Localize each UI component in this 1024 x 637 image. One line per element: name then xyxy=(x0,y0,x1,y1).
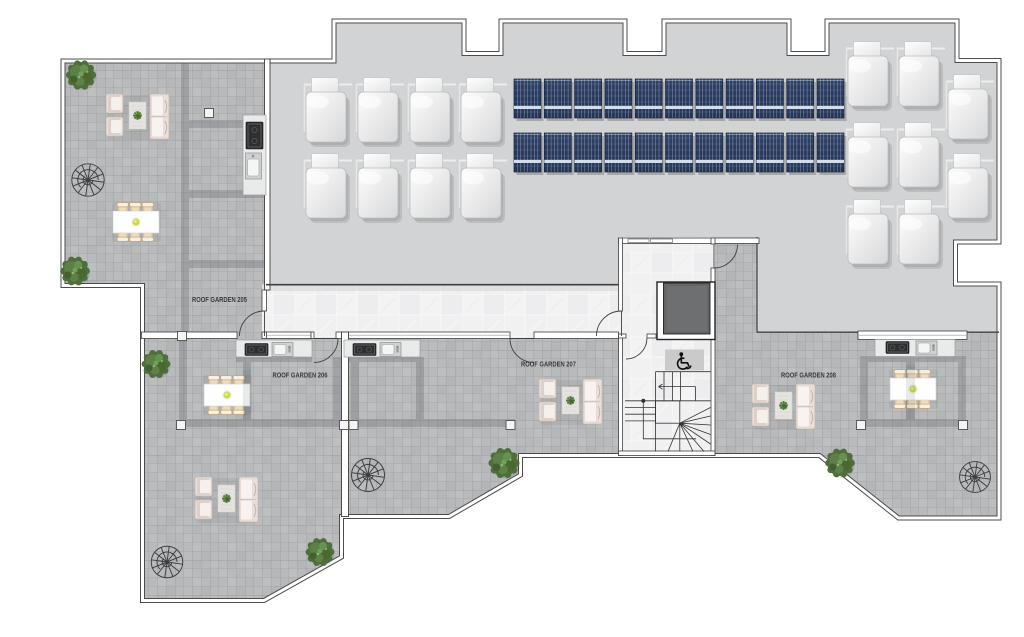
svg-text:ROOF GARDEN 208: ROOF GARDEN 208 xyxy=(781,371,836,380)
svg-text:ROOF GARDEN 207: ROOF GARDEN 207 xyxy=(521,360,576,369)
svg-text:ROOF GARDEN 205: ROOF GARDEN 205 xyxy=(192,295,248,304)
svg-text:ROOF GARDEN 206: ROOF GARDEN 206 xyxy=(273,371,328,380)
